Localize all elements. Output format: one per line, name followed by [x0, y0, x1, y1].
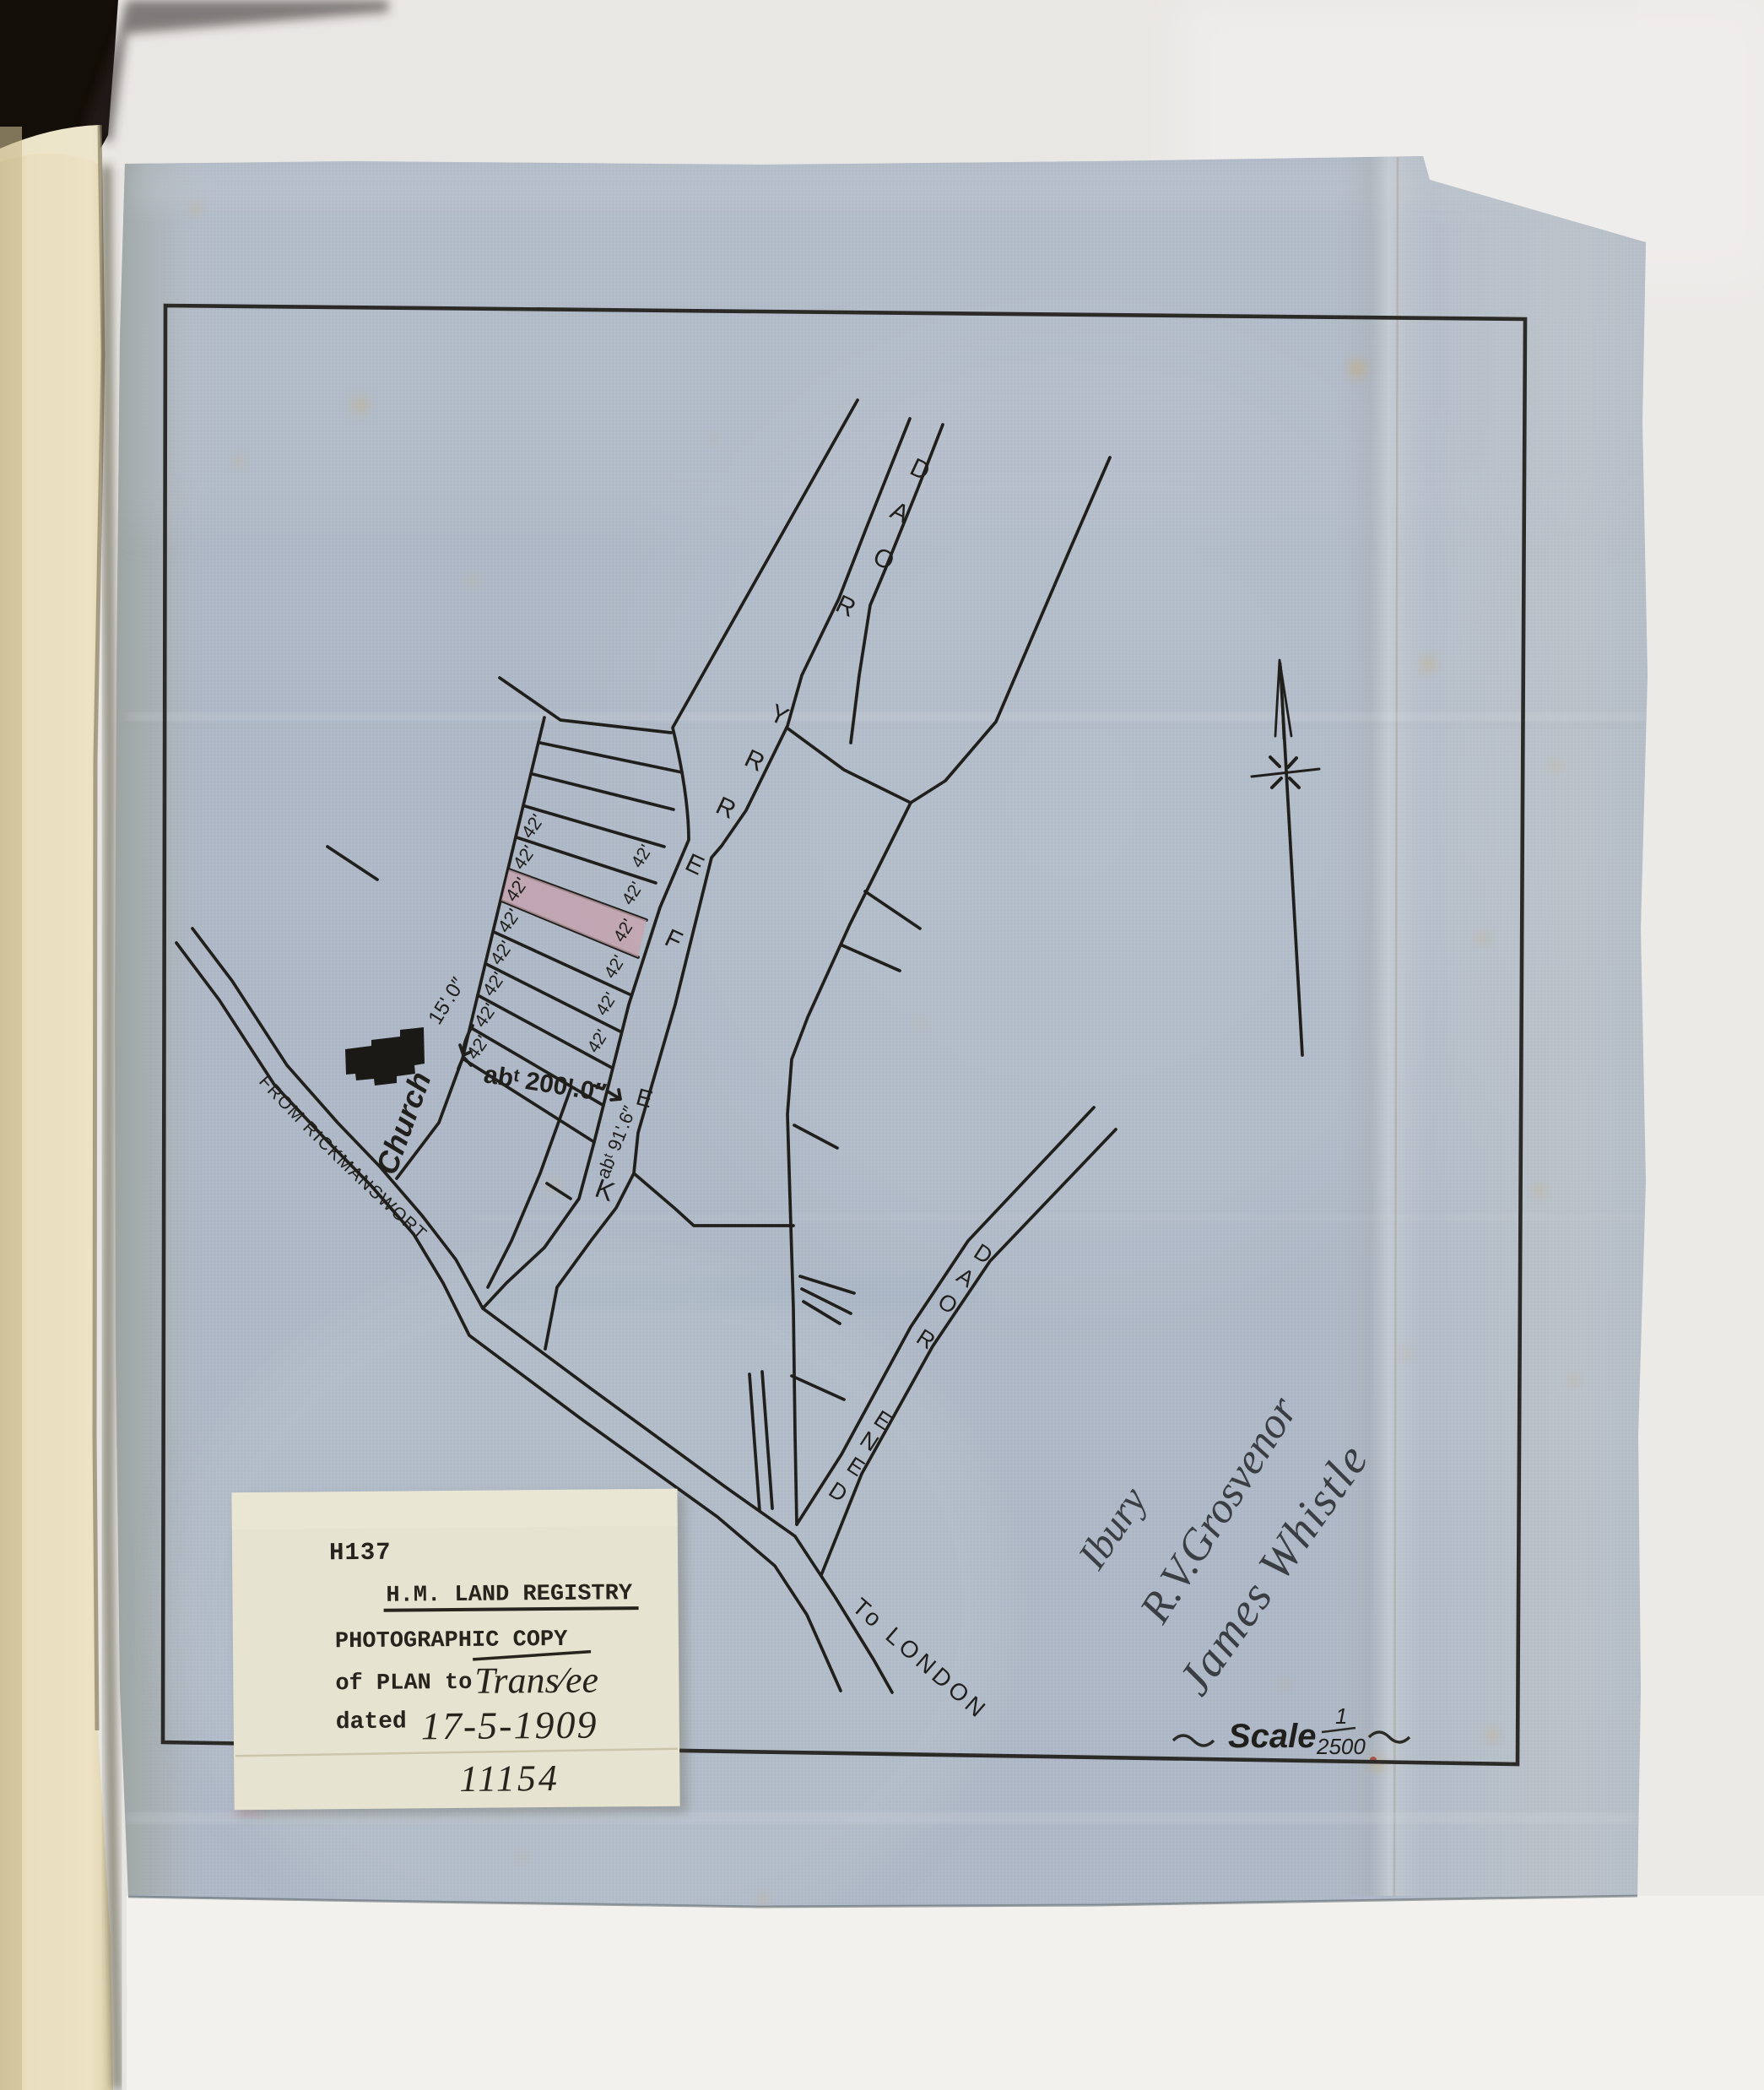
svg-text:H.M. LAND REGISTRY: H.M. LAND REGISTRY [386, 1581, 633, 1609]
svg-text:2500: 2500 [1316, 1734, 1366, 1759]
svg-text:17-5-1909: 17-5-1909 [421, 1703, 598, 1748]
svg-text:Scale: Scale [1228, 1718, 1317, 1755]
svg-text:11154: 11154 [459, 1757, 560, 1800]
svg-text:1: 1 [1335, 1703, 1347, 1729]
svg-text:of PLAN to: of PLAN to [335, 1670, 472, 1697]
svg-text:Trans∕ee: Trans∕ee [474, 1660, 598, 1702]
svg-text:H137: H137 [329, 1539, 392, 1567]
svg-text:PHOTOGRAPHIC COPY: PHOTOGRAPHIC COPY [335, 1627, 568, 1654]
svg-text:dated: dated [336, 1709, 407, 1736]
